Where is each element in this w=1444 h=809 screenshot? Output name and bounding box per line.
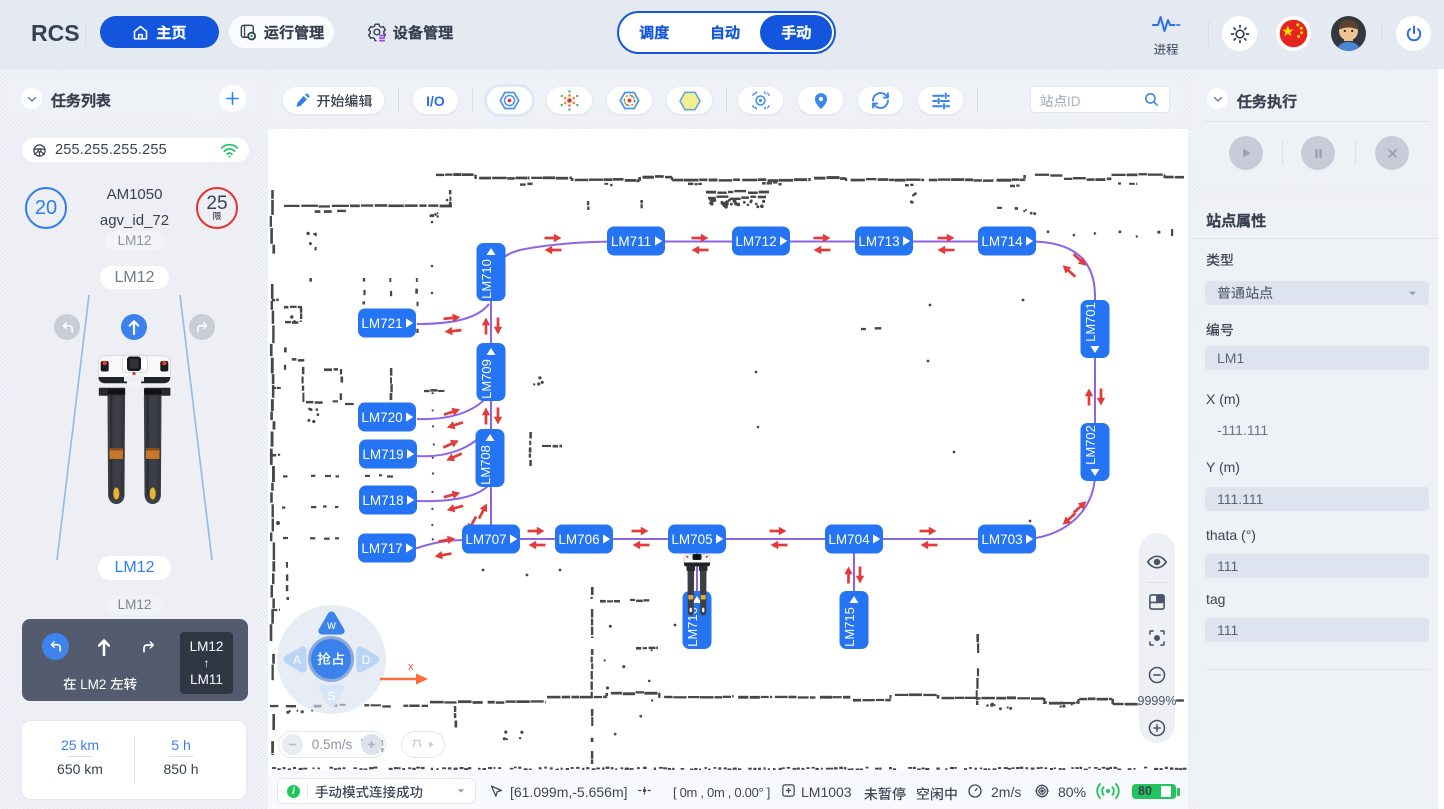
svg-text:LM719: LM719 xyxy=(362,447,403,462)
svg-text:x: x xyxy=(408,661,414,673)
svg-text:LM701: LM701 xyxy=(1083,302,1098,342)
svg-text:S: S xyxy=(327,689,335,703)
svg-text:LM711: LM711 xyxy=(611,234,651,249)
svg-text:LM708: LM708 xyxy=(478,445,493,485)
svg-text:LM720: LM720 xyxy=(361,410,402,425)
svg-text:D: D xyxy=(362,653,371,667)
svg-text:LM704: LM704 xyxy=(828,532,870,547)
svg-text:LM715: LM715 xyxy=(842,607,857,647)
svg-text:A: A xyxy=(293,653,301,667)
svg-text:LM712: LM712 xyxy=(735,234,776,249)
svg-text:LM703: LM703 xyxy=(981,532,1022,547)
svg-text:LM709: LM709 xyxy=(479,359,494,399)
svg-text:LM710: LM710 xyxy=(479,259,494,299)
svg-text:w: w xyxy=(326,618,336,632)
svg-text:LM702: LM702 xyxy=(1083,425,1098,465)
svg-text:LM705: LM705 xyxy=(671,532,712,547)
svg-text:LM714: LM714 xyxy=(981,234,1023,249)
svg-text:LM718: LM718 xyxy=(362,493,403,508)
svg-text:LM721: LM721 xyxy=(361,316,402,331)
svg-text:LM706: LM706 xyxy=(558,532,599,547)
svg-text:LM713: LM713 xyxy=(858,234,899,249)
svg-text:LM717: LM717 xyxy=(361,541,402,556)
svg-text:LM707: LM707 xyxy=(465,532,506,547)
